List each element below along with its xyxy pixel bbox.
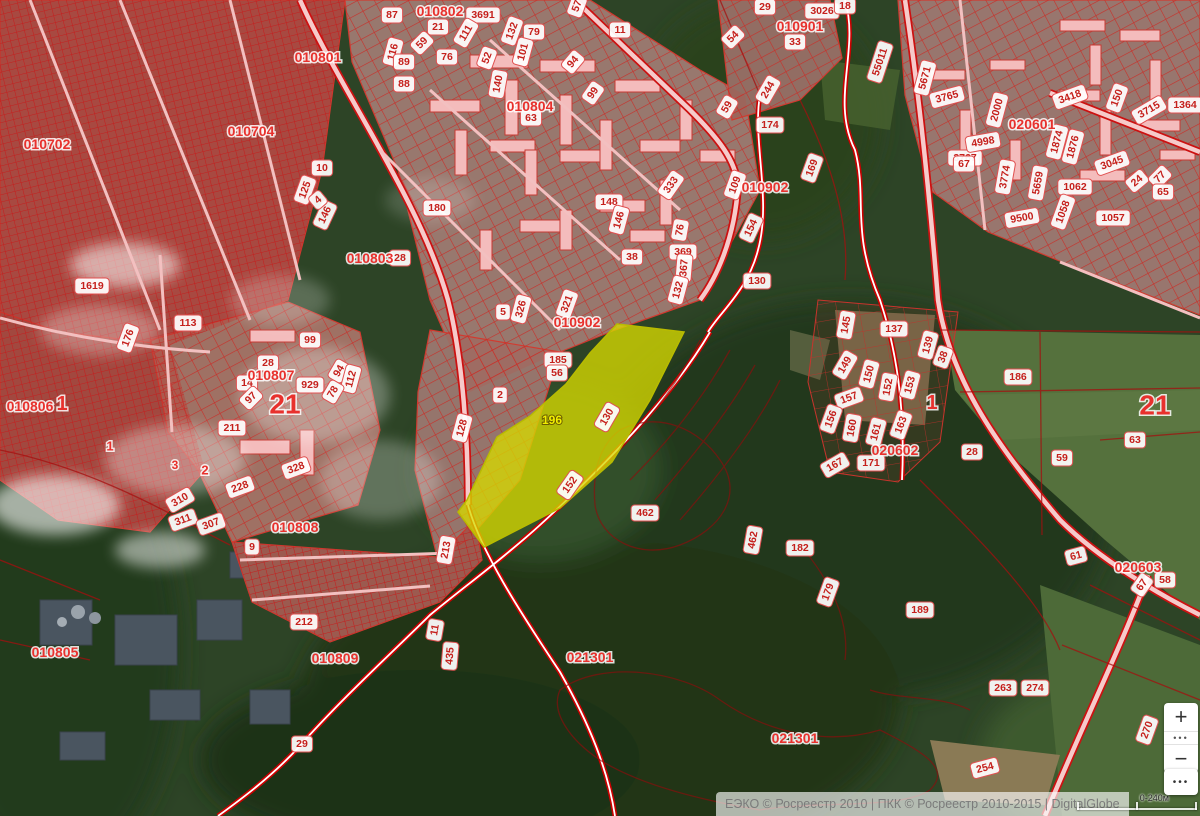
parcel-number-label: 33 <box>784 34 805 50</box>
parcel-number-label: 186 <box>1004 369 1032 385</box>
parcel-number-label: 1057 <box>1096 210 1130 226</box>
quarter-number-label: 010807 <box>248 367 295 383</box>
parcel-number-label: 11 <box>609 22 630 38</box>
parcel-number-label: 11 <box>425 618 444 642</box>
svg-text:76: 76 <box>673 223 687 237</box>
svg-text:28: 28 <box>966 446 978 458</box>
svg-text:76: 76 <box>441 51 453 63</box>
parcel-number-label: 212 <box>290 614 318 630</box>
parcel-number-label: 1619 <box>75 278 109 294</box>
svg-text:212: 212 <box>295 616 313 628</box>
quarter-number-label: 010803 <box>347 250 394 266</box>
svg-text:186: 186 <box>1009 371 1027 383</box>
parcel-number-label: 87 <box>381 7 402 23</box>
parcel-number-label: 274 <box>1021 680 1049 696</box>
svg-text:11: 11 <box>614 24 625 36</box>
parcel-number-label: 21 <box>427 19 448 35</box>
parcel-number-label: 1364 <box>1168 97 1200 113</box>
svg-text:137: 137 <box>885 323 903 335</box>
more-options-button[interactable]: ••• <box>1164 769 1198 795</box>
quarter-number-label: 020601 <box>1009 116 1056 132</box>
parcel-number-label: 76 <box>436 49 457 65</box>
svg-text:171: 171 <box>862 457 880 469</box>
parcel-number-label: 180 <box>423 200 451 216</box>
parcel-number-label: 263 <box>989 680 1017 696</box>
svg-text:10: 10 <box>316 162 328 174</box>
svg-text:29: 29 <box>759 1 771 13</box>
svg-text:367: 367 <box>677 259 690 278</box>
svg-text:58: 58 <box>1159 574 1171 586</box>
quarter-number-label: 21 <box>1139 390 1170 421</box>
parcel-number-label: 28 <box>961 444 982 460</box>
svg-text:180: 180 <box>428 202 446 214</box>
parcel-number-label: 1062 <box>1058 179 1092 195</box>
quarter-number-label: 010801 <box>295 49 342 65</box>
svg-text:1057: 1057 <box>1101 212 1125 224</box>
parcel-number-label: 435 <box>441 641 459 670</box>
parcel-number-label: 29 <box>754 0 775 15</box>
svg-text:189: 189 <box>911 604 929 616</box>
quarter-number-label: 3 <box>172 458 179 472</box>
svg-text:38: 38 <box>626 251 638 263</box>
attribution-bar: ЕЭКО © Росреестр 2010 | ПКК © Росреестр … <box>716 792 1129 816</box>
svg-text:3026: 3026 <box>810 5 834 17</box>
svg-text:1619: 1619 <box>80 280 104 292</box>
svg-text:185: 185 <box>549 354 567 366</box>
parcel-number-label: 76 <box>670 218 689 242</box>
quarter-number-label: 010802 <box>417 3 464 19</box>
parcel-number-label: 2 <box>493 387 508 403</box>
quarter-number-label: 021301 <box>772 730 819 746</box>
svg-text:63: 63 <box>1129 434 1141 446</box>
svg-text:89: 89 <box>398 56 410 68</box>
quarter-number-label: 020602 <box>872 442 919 458</box>
zoom-handle-dots-icon[interactable]: ••• <box>1164 731 1198 745</box>
svg-text:67: 67 <box>958 158 970 170</box>
parcel-number-label: 56 <box>546 365 567 381</box>
scale-bar: 0-240м <box>1077 799 1197 813</box>
quarter-number-label: 1 <box>926 392 937 414</box>
svg-text:1364: 1364 <box>1173 99 1197 111</box>
quarter-number-label: 010809 <box>312 650 359 666</box>
svg-text:5: 5 <box>500 306 506 318</box>
zoom-control[interactable]: + ••• − <box>1164 703 1198 773</box>
parcel-number-label: 211 <box>218 420 246 436</box>
svg-text:18: 18 <box>839 0 851 12</box>
svg-text:182: 182 <box>791 542 809 554</box>
svg-text:274: 274 <box>1026 682 1044 694</box>
parcel-number-label: 88 <box>393 76 414 92</box>
quarter-number-label: 21 <box>269 389 300 420</box>
svg-text:21: 21 <box>432 21 444 33</box>
parcel-number-label: 29 <box>291 736 312 752</box>
quarter-number-label: 010902 <box>742 179 789 195</box>
quarter-number-label: 2 <box>201 463 208 478</box>
parcel-number-label: 38 <box>621 249 642 265</box>
quarter-number-label: 010806 <box>7 398 54 414</box>
quarter-number-label: 010901 <box>777 18 824 34</box>
parcel-number-label: 137 <box>880 321 908 337</box>
parcel-number-label: 9 <box>245 539 260 555</box>
svg-text:263: 263 <box>994 682 1012 694</box>
quarter-number-label: 020603 <box>1115 559 1162 575</box>
svg-text:2: 2 <box>497 389 503 401</box>
quarter-number-label: 021301 <box>567 649 614 665</box>
svg-text:28: 28 <box>394 252 406 264</box>
svg-text:9: 9 <box>249 541 255 553</box>
quarter-number-label: 1 <box>106 439 113 454</box>
svg-text:65: 65 <box>1157 186 1169 198</box>
svg-text:929: 929 <box>301 379 319 391</box>
quarter-number-label: 010902 <box>554 314 601 330</box>
parcel-number-label: 462 <box>631 505 659 521</box>
map-viewport[interactable]: 8736912111113279571159765210111689881409… <box>0 0 1200 816</box>
parcel-number-label: 130 <box>743 273 771 289</box>
svg-text:174: 174 <box>761 119 779 131</box>
parcel-number-label: 65 <box>1152 184 1173 200</box>
parcel-number-label: 79 <box>523 24 544 40</box>
selected-parcel-number-label: 196 <box>542 413 562 427</box>
svg-text:88: 88 <box>398 78 410 90</box>
svg-text:56: 56 <box>551 367 563 379</box>
svg-text:59: 59 <box>1056 452 1068 464</box>
quarter-number-label: 010704 <box>228 123 275 139</box>
svg-text:33: 33 <box>789 36 801 48</box>
parcel-number-label: 59 <box>1051 450 1072 466</box>
svg-text:3691: 3691 <box>471 9 495 21</box>
parcel-number-label: 63 <box>1124 432 1145 448</box>
parcel-number-label: 113 <box>174 315 202 331</box>
scale-label: 0-240м <box>1140 793 1169 803</box>
parcel-number-label: 189 <box>906 602 934 618</box>
parcel-number-label: 174 <box>756 117 784 133</box>
parcel-number-label: 89 <box>393 54 414 70</box>
svg-text:130: 130 <box>748 275 766 287</box>
svg-text:11: 11 <box>428 623 442 636</box>
parcel-number-label: 10 <box>311 160 332 176</box>
svg-text:462: 462 <box>636 507 654 519</box>
quarter-number-label: 010804 <box>507 98 554 114</box>
parcel-number-label: 18 <box>834 0 855 14</box>
parcel-number-label: 99 <box>299 332 320 348</box>
parcel-number-label: 5 <box>496 304 511 320</box>
parcel-number-label: 182 <box>786 540 814 556</box>
svg-text:87: 87 <box>386 9 398 21</box>
svg-text:79: 79 <box>528 26 540 38</box>
svg-text:99: 99 <box>304 334 316 346</box>
quarter-number-label: 010702 <box>24 136 71 152</box>
parcel-number-label: 67 <box>953 156 974 172</box>
map-canvas[interactable]: 8736912111113279571159765210111689881409… <box>0 0 1200 816</box>
svg-text:435: 435 <box>443 647 456 666</box>
svg-text:211: 211 <box>224 422 241 434</box>
svg-text:1062: 1062 <box>1063 181 1087 193</box>
svg-text:29: 29 <box>296 738 308 750</box>
quarter-number-label: 010808 <box>272 519 319 535</box>
quarter-number-label: 1 <box>56 393 67 415</box>
quarter-number-label: 010805 <box>32 644 79 660</box>
svg-text:113: 113 <box>180 317 197 329</box>
zoom-in-button[interactable]: + <box>1164 703 1198 731</box>
